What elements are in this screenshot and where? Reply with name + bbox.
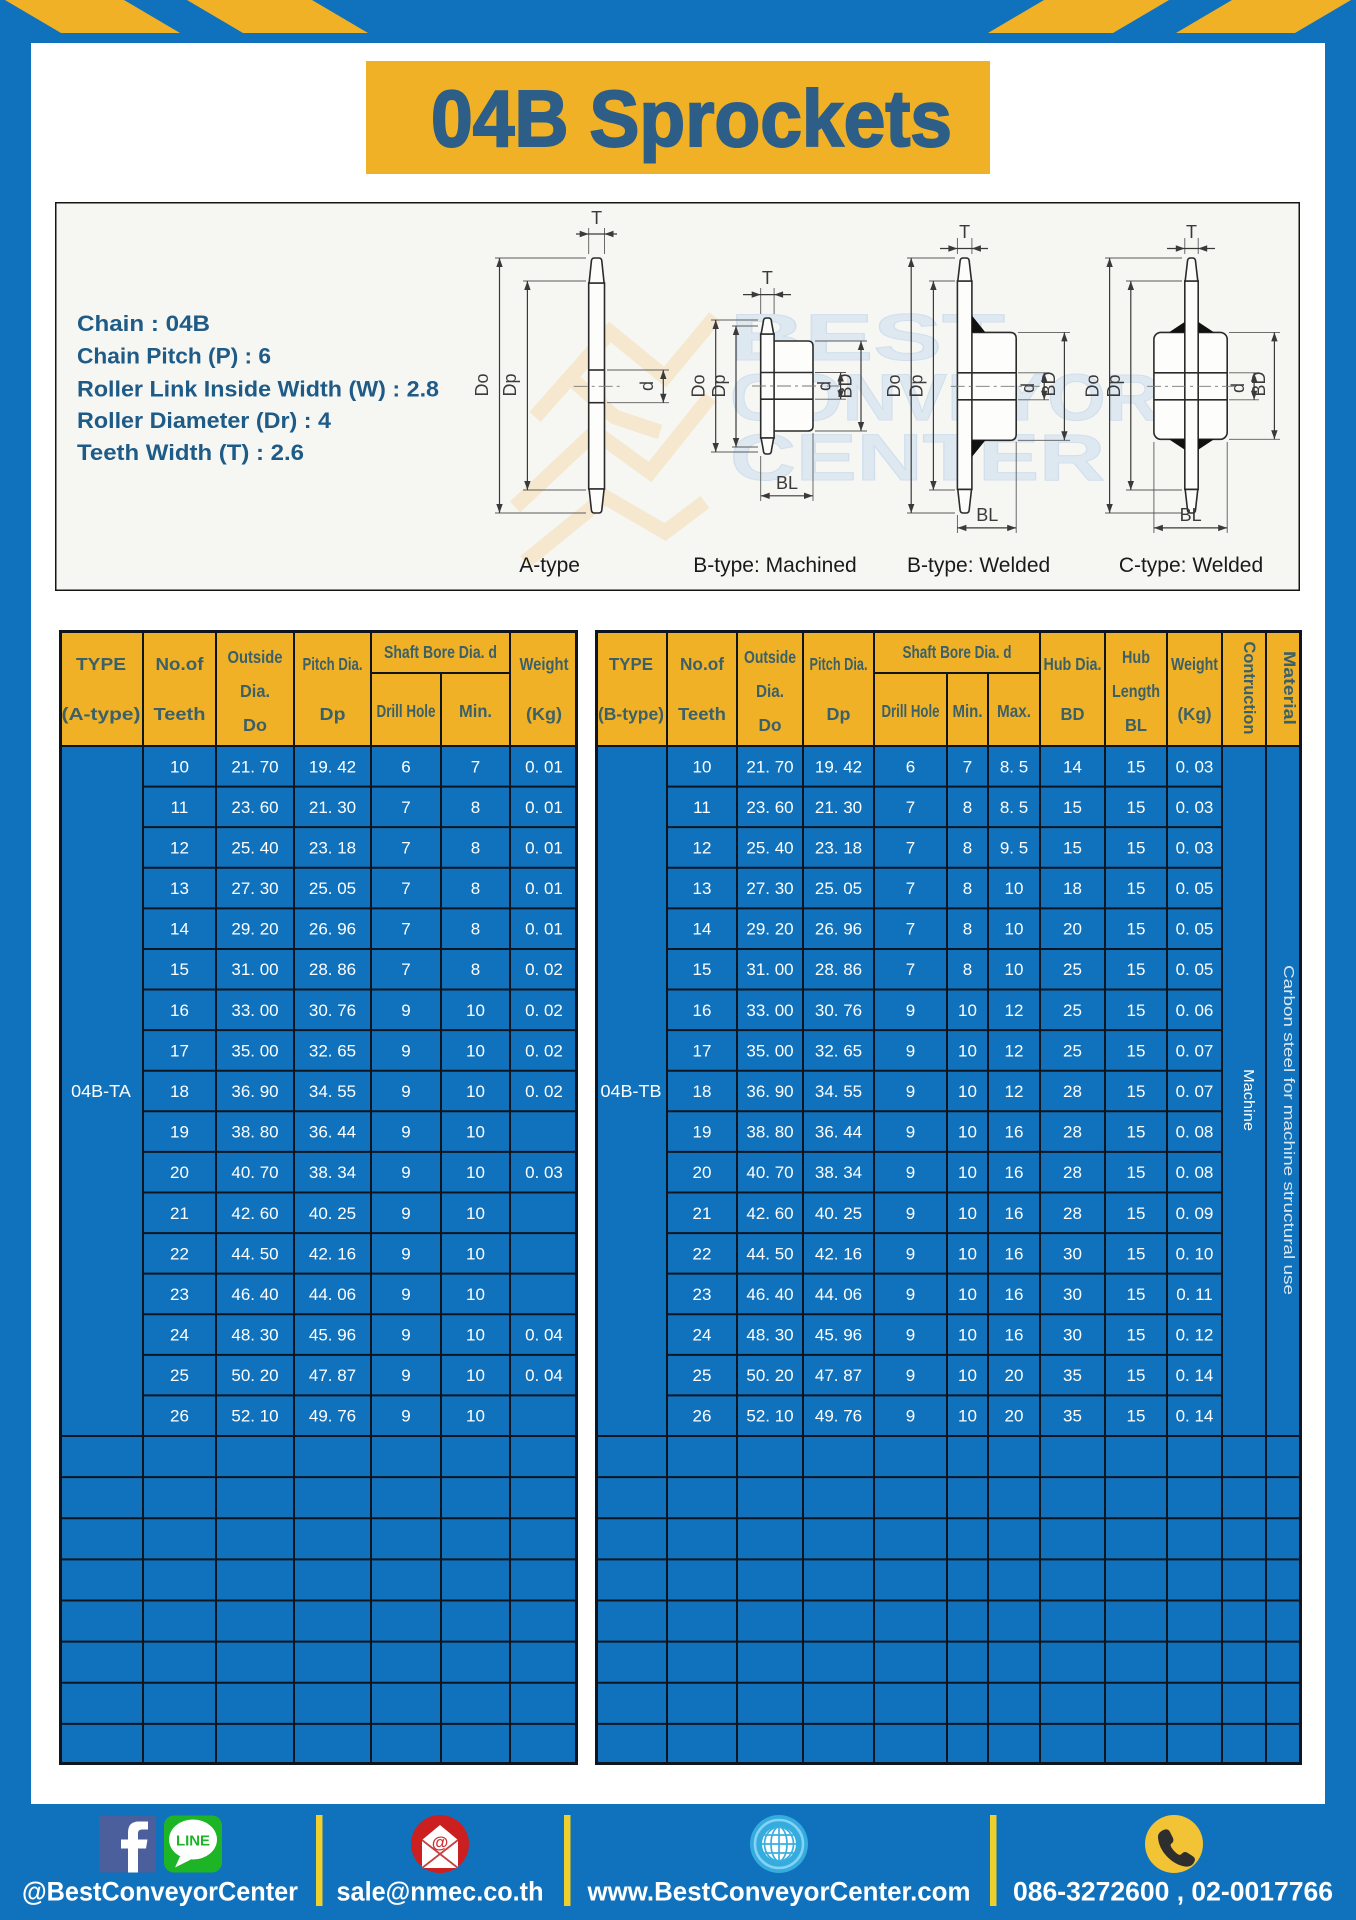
svg-text:44. 50: 44. 50 (231, 1244, 278, 1263)
svg-text:10: 10 (958, 1001, 977, 1020)
svg-text:24: 24 (170, 1326, 189, 1345)
svg-text:8. 5: 8. 5 (1000, 757, 1028, 776)
svg-text:9: 9 (401, 1123, 410, 1142)
svg-text:10: 10 (958, 1204, 977, 1223)
svg-text:(Kg): (Kg) (526, 704, 562, 724)
svg-text:@: @ (432, 1833, 449, 1852)
svg-text:10: 10 (958, 1285, 977, 1304)
svg-text:10: 10 (958, 1366, 977, 1385)
svg-text:Drill Hole: Drill Hole (376, 701, 435, 721)
svg-text:10: 10 (693, 757, 712, 776)
svg-text:20: 20 (1005, 1366, 1024, 1385)
svg-text:23. 18: 23. 18 (309, 838, 356, 857)
svg-text:10: 10 (466, 1163, 485, 1182)
svg-text:0. 04: 0. 04 (525, 1326, 563, 1345)
svg-text:10: 10 (466, 1204, 485, 1223)
svg-text:48. 30: 48. 30 (746, 1326, 793, 1345)
svg-text:21. 30: 21. 30 (309, 798, 356, 817)
svg-text:8: 8 (963, 960, 972, 979)
svg-text:10: 10 (466, 1041, 485, 1060)
svg-text:16: 16 (693, 1001, 712, 1020)
svg-text:TYPE: TYPE (609, 654, 653, 674)
svg-text:46. 40: 46. 40 (231, 1285, 278, 1304)
svg-text:(Kg): (Kg) (1177, 704, 1211, 724)
svg-text:0. 03: 0. 03 (1176, 798, 1214, 817)
svg-text:25. 40: 25. 40 (231, 838, 278, 857)
svg-text:Do: Do (472, 373, 492, 396)
svg-text:BD: BD (1039, 371, 1059, 396)
svg-text:9: 9 (906, 1041, 915, 1060)
svg-text:0. 02: 0. 02 (525, 1082, 563, 1101)
svg-text:0. 01: 0. 01 (525, 920, 563, 939)
svg-text:8: 8 (471, 798, 480, 817)
svg-text:Drill Hole: Drill Hole (882, 701, 940, 721)
svg-text:9: 9 (401, 1326, 410, 1345)
svg-text:Do: Do (1083, 374, 1103, 397)
svg-text:@BestConveyorCenter: @BestConveyorCenter (22, 1877, 298, 1907)
svg-text:7: 7 (906, 879, 915, 898)
svg-text:15: 15 (1127, 1366, 1146, 1385)
svg-text:20: 20 (693, 1163, 712, 1182)
svg-text:T: T (591, 208, 602, 228)
svg-text:26. 96: 26. 96 (815, 920, 862, 939)
svg-text:9: 9 (401, 1366, 410, 1385)
svg-text:15: 15 (1127, 1123, 1146, 1142)
svg-text:7: 7 (401, 879, 410, 898)
svg-text:25: 25 (170, 1366, 189, 1385)
svg-text:10: 10 (466, 1244, 485, 1263)
svg-text:Min.: Min. (952, 701, 982, 721)
svg-text:7: 7 (906, 798, 915, 817)
svg-text:16: 16 (1005, 1204, 1024, 1223)
svg-text:Dp: Dp (907, 374, 927, 397)
svg-text:8: 8 (471, 879, 480, 898)
svg-text:36. 90: 36. 90 (746, 1082, 793, 1101)
svg-text:Dia.: Dia. (240, 681, 270, 701)
svg-text:8: 8 (471, 960, 480, 979)
svg-text:28. 86: 28. 86 (309, 960, 356, 979)
svg-text:0. 03: 0. 03 (1176, 757, 1214, 776)
svg-text:10: 10 (466, 1082, 485, 1101)
svg-text:d: d (1228, 383, 1248, 393)
svg-text:25: 25 (1063, 1041, 1082, 1060)
svg-text:28: 28 (1063, 1163, 1082, 1182)
svg-text:24: 24 (693, 1326, 712, 1345)
svg-text:27. 30: 27. 30 (746, 879, 793, 898)
svg-text:8. 5: 8. 5 (1000, 798, 1028, 817)
svg-text:15: 15 (1127, 1326, 1146, 1345)
svg-text:38. 80: 38. 80 (746, 1123, 793, 1142)
svg-text:10: 10 (466, 1326, 485, 1345)
svg-text:13: 13 (693, 879, 712, 898)
svg-text:Hub: Hub (1122, 647, 1150, 667)
svg-text:40. 25: 40. 25 (815, 1204, 862, 1223)
svg-text:9. 5: 9. 5 (1000, 838, 1028, 857)
svg-text:49. 76: 49. 76 (815, 1407, 862, 1426)
svg-text:12: 12 (1005, 1082, 1024, 1101)
svg-text:36. 44: 36. 44 (815, 1123, 862, 1142)
svg-text:21: 21 (170, 1204, 189, 1223)
svg-text:30: 30 (1063, 1326, 1082, 1345)
svg-text:T: T (959, 222, 970, 242)
svg-text:25: 25 (1063, 960, 1082, 979)
svg-text:Dp: Dp (319, 704, 345, 724)
svg-text:10: 10 (466, 1123, 485, 1142)
svg-text:0. 14: 0. 14 (1176, 1366, 1214, 1385)
svg-text:10: 10 (958, 1326, 977, 1345)
svg-text:30: 30 (1063, 1285, 1082, 1304)
svg-text:9: 9 (401, 1407, 410, 1426)
svg-text:A-type: A-type (519, 554, 580, 577)
svg-text:(A-type): (A-type) (62, 704, 141, 724)
svg-text:7: 7 (401, 798, 410, 817)
svg-text:26. 96: 26. 96 (309, 920, 356, 939)
svg-text:50. 20: 50. 20 (231, 1366, 278, 1385)
svg-text:38. 34: 38. 34 (309, 1163, 356, 1182)
svg-text:0. 04: 0. 04 (525, 1366, 563, 1385)
svg-text:15: 15 (1127, 1082, 1146, 1101)
svg-text:7: 7 (906, 838, 915, 857)
svg-text:0. 09: 0. 09 (1176, 1204, 1214, 1223)
svg-text:48. 30: 48. 30 (231, 1326, 278, 1345)
svg-text:18: 18 (170, 1082, 189, 1101)
svg-text:04B-TB: 04B-TB (601, 1081, 662, 1101)
svg-text:086-3272600 , 02-0017766: 086-3272600 , 02-0017766 (1013, 1877, 1333, 1907)
svg-text:0. 07: 0. 07 (1176, 1041, 1214, 1060)
svg-text:9: 9 (401, 1163, 410, 1182)
svg-text:9: 9 (906, 1244, 915, 1263)
svg-text:19. 42: 19. 42 (309, 757, 356, 776)
svg-text:10: 10 (466, 1285, 485, 1304)
svg-text:Outside: Outside (228, 647, 283, 667)
svg-text:Length: Length (1112, 681, 1160, 701)
svg-text:6: 6 (906, 757, 915, 776)
svg-text:31. 00: 31. 00 (746, 960, 793, 979)
svg-text:04B Sprockets: 04B Sprockets (431, 74, 952, 163)
svg-text:Do: Do (884, 374, 904, 397)
svg-text:15: 15 (1127, 757, 1146, 776)
svg-text:15: 15 (1063, 838, 1082, 857)
svg-text:T: T (762, 268, 773, 288)
svg-text:35: 35 (1063, 1407, 1082, 1426)
svg-text:Do: Do (759, 715, 782, 735)
svg-text:Contruction: Contruction (1240, 641, 1259, 734)
svg-text:15: 15 (170, 960, 189, 979)
svg-text:Roller Diameter (Dr) : 4: Roller Diameter (Dr) : 4 (77, 408, 332, 433)
svg-text:B-type: Machined: B-type: Machined (693, 554, 856, 577)
svg-text:47. 87: 47. 87 (815, 1366, 862, 1385)
svg-text:Dp: Dp (1104, 374, 1124, 397)
svg-text:0. 02: 0. 02 (525, 1001, 563, 1020)
svg-text:22: 22 (693, 1244, 712, 1263)
svg-text:0. 14: 0. 14 (1176, 1407, 1214, 1426)
svg-text:35. 00: 35. 00 (231, 1041, 278, 1060)
svg-text:(B-type): (B-type) (598, 704, 664, 724)
svg-text:d: d (637, 381, 657, 391)
svg-text:14: 14 (1063, 757, 1082, 776)
svg-text:25. 05: 25. 05 (815, 879, 862, 898)
svg-text:21. 30: 21. 30 (815, 798, 862, 817)
svg-text:9: 9 (401, 1001, 410, 1020)
svg-text:40. 25: 40. 25 (309, 1204, 356, 1223)
svg-text:15: 15 (1127, 1041, 1146, 1060)
svg-text:9: 9 (401, 1041, 410, 1060)
svg-text:16: 16 (1005, 1326, 1024, 1345)
svg-text:15: 15 (1127, 1244, 1146, 1263)
svg-text:17: 17 (693, 1041, 712, 1060)
svg-text:Min.: Min. (459, 701, 492, 721)
svg-text:10: 10 (958, 1041, 977, 1060)
svg-text:10: 10 (466, 1001, 485, 1020)
svg-text:46. 40: 46. 40 (746, 1285, 793, 1304)
svg-text:23. 60: 23. 60 (746, 798, 793, 817)
svg-text:12: 12 (693, 838, 712, 857)
svg-text:7: 7 (906, 920, 915, 939)
svg-text:8: 8 (471, 920, 480, 939)
svg-text:38. 34: 38. 34 (815, 1163, 862, 1182)
svg-text:Max.: Max. (997, 701, 1031, 721)
svg-text:23: 23 (170, 1285, 189, 1304)
svg-text:10: 10 (170, 757, 189, 776)
svg-text:15: 15 (1063, 798, 1082, 817)
svg-text:0. 05: 0. 05 (1176, 879, 1214, 898)
svg-text:8: 8 (963, 920, 972, 939)
svg-text:10: 10 (466, 1407, 485, 1426)
svg-text:No.of: No.of (156, 654, 205, 674)
svg-text:15: 15 (1127, 798, 1146, 817)
svg-text:9: 9 (906, 1366, 915, 1385)
svg-text:BL: BL (776, 473, 798, 493)
svg-text:9: 9 (906, 1001, 915, 1020)
svg-text:Carbon steel for machine struc: Carbon steel for machine structural use (1280, 965, 1297, 1295)
svg-text:B-type: Welded: B-type: Welded (907, 554, 1050, 577)
svg-text:9: 9 (401, 1204, 410, 1223)
svg-text:14: 14 (693, 920, 712, 939)
svg-text:16: 16 (1005, 1123, 1024, 1142)
svg-text:15: 15 (1127, 960, 1146, 979)
svg-text:BL: BL (976, 505, 998, 525)
svg-text:19: 19 (693, 1123, 712, 1142)
svg-text:42. 16: 42. 16 (309, 1244, 356, 1263)
svg-text:45. 96: 45. 96 (309, 1326, 356, 1345)
svg-text:12: 12 (170, 838, 189, 857)
svg-text:20: 20 (170, 1163, 189, 1182)
svg-text:9: 9 (906, 1082, 915, 1101)
svg-text:d: d (815, 381, 835, 391)
svg-text:25: 25 (693, 1366, 712, 1385)
svg-text:C-type: Welded: C-type: Welded (1119, 554, 1263, 577)
svg-text:BD: BD (1060, 704, 1084, 724)
svg-text:10: 10 (958, 1082, 977, 1101)
svg-text:26: 26 (693, 1407, 712, 1426)
svg-text:9: 9 (906, 1163, 915, 1182)
svg-text:0. 01: 0. 01 (525, 798, 563, 817)
svg-text:9: 9 (906, 1204, 915, 1223)
svg-text:36. 90: 36. 90 (231, 1082, 278, 1101)
svg-text:9: 9 (906, 1407, 915, 1426)
svg-text:15: 15 (1127, 920, 1146, 939)
svg-text:23: 23 (693, 1285, 712, 1304)
svg-text:Pitch Dia.: Pitch Dia. (810, 654, 868, 674)
svg-text:12: 12 (1005, 1041, 1024, 1060)
svg-text:42. 60: 42. 60 (231, 1204, 278, 1223)
svg-text:BL: BL (1125, 715, 1147, 735)
svg-text:16: 16 (1005, 1285, 1024, 1304)
svg-text:9: 9 (906, 1123, 915, 1142)
svg-text:0. 07: 0. 07 (1176, 1082, 1214, 1101)
svg-text:44. 06: 44. 06 (309, 1285, 356, 1304)
svg-text:Shaft Bore Dia. d: Shaft Bore Dia. d (384, 642, 497, 662)
svg-text:34. 55: 34. 55 (815, 1082, 862, 1101)
svg-text:Weight: Weight (519, 654, 568, 674)
svg-text:Dp: Dp (827, 704, 851, 724)
svg-text:Do: Do (689, 374, 709, 397)
svg-text:BD: BD (1249, 371, 1269, 396)
svg-text:52. 10: 52. 10 (746, 1407, 793, 1426)
svg-text:d: d (1018, 383, 1038, 393)
svg-text:Dia.: Dia. (756, 681, 784, 701)
svg-text:32. 65: 32. 65 (309, 1041, 356, 1060)
svg-text:52. 10: 52. 10 (231, 1407, 278, 1426)
svg-text:Teeth: Teeth (678, 704, 726, 724)
svg-text:15: 15 (1127, 1001, 1146, 1020)
svg-text:18: 18 (693, 1082, 712, 1101)
svg-text:49. 76: 49. 76 (309, 1407, 356, 1426)
svg-text:0. 12: 0. 12 (1176, 1326, 1214, 1345)
svg-text:0. 02: 0. 02 (525, 960, 563, 979)
svg-text:30: 30 (1063, 1244, 1082, 1263)
svg-text:Dp: Dp (500, 373, 520, 396)
svg-text:17: 17 (170, 1041, 189, 1060)
svg-text:LINE: LINE (176, 1833, 210, 1850)
svg-text:Dp: Dp (709, 374, 729, 397)
svg-text:Roller Link Inside Width (W): Roller Link Inside Width (W) : 2.8 (77, 377, 439, 402)
svg-text:35: 35 (1063, 1366, 1082, 1385)
svg-text:28: 28 (1063, 1123, 1082, 1142)
svg-text:Machine: Machine (1240, 1069, 1257, 1131)
svg-text:7: 7 (963, 757, 972, 776)
svg-text:BD: BD (836, 373, 856, 398)
svg-text:9: 9 (401, 1082, 410, 1101)
svg-text:42. 60: 42. 60 (746, 1204, 793, 1223)
svg-text:29. 20: 29. 20 (231, 920, 278, 939)
svg-text:14: 14 (170, 920, 189, 939)
svg-text:Outside: Outside (744, 647, 796, 667)
svg-text:0. 11: 0. 11 (1176, 1285, 1213, 1304)
svg-text:13: 13 (170, 879, 189, 898)
svg-text:35. 00: 35. 00 (746, 1041, 793, 1060)
svg-text:22: 22 (170, 1244, 189, 1263)
svg-text:10: 10 (466, 1366, 485, 1385)
svg-text:30. 76: 30. 76 (815, 1001, 862, 1020)
svg-text:21. 70: 21. 70 (746, 757, 793, 776)
svg-text:16: 16 (170, 1001, 189, 1020)
svg-text:38. 80: 38. 80 (231, 1123, 278, 1142)
svg-text:Do: Do (243, 715, 267, 735)
svg-text:36. 44: 36. 44 (309, 1123, 356, 1142)
svg-text:10: 10 (1005, 879, 1024, 898)
svg-text:28. 86: 28. 86 (815, 960, 862, 979)
svg-text:15: 15 (1127, 1163, 1146, 1182)
svg-text:10: 10 (1005, 920, 1024, 939)
svg-text:25. 05: 25. 05 (309, 879, 356, 898)
svg-text:21. 70: 21. 70 (231, 757, 278, 776)
svg-text:10: 10 (1005, 960, 1024, 979)
svg-text:32. 65: 32. 65 (815, 1041, 862, 1060)
svg-text:9: 9 (906, 1326, 915, 1345)
svg-text:23. 60: 23. 60 (231, 798, 278, 817)
svg-text:04B-TA: 04B-TA (71, 1081, 131, 1101)
svg-text:TYPE: TYPE (76, 654, 126, 674)
svg-text:10: 10 (958, 1407, 977, 1426)
svg-text:44. 06: 44. 06 (815, 1285, 862, 1304)
svg-text:33. 00: 33. 00 (746, 1001, 793, 1020)
svg-text:18: 18 (1063, 879, 1082, 898)
svg-text:Teeth: Teeth (154, 704, 206, 724)
svg-text:15: 15 (1127, 879, 1146, 898)
svg-text:7: 7 (401, 920, 410, 939)
svg-text:Shaft Bore Dia. d: Shaft Bore Dia. d (903, 642, 1012, 662)
svg-text:Weight: Weight (1171, 654, 1218, 674)
svg-text:40. 70: 40. 70 (746, 1163, 793, 1182)
svg-text:28: 28 (1063, 1082, 1082, 1101)
svg-text:25: 25 (1063, 1001, 1082, 1020)
svg-text:T: T (1186, 222, 1197, 242)
svg-text:0. 01: 0. 01 (525, 838, 563, 857)
svg-text:8: 8 (963, 838, 972, 857)
svg-text:50. 20: 50. 20 (746, 1366, 793, 1385)
svg-text:0. 06: 0. 06 (1176, 1001, 1214, 1020)
svg-text:23. 18: 23. 18 (815, 838, 862, 857)
svg-text:15: 15 (1127, 1407, 1146, 1426)
svg-text:6: 6 (401, 757, 410, 776)
svg-text:8: 8 (471, 838, 480, 857)
svg-text:0. 01: 0. 01 (525, 757, 563, 776)
svg-text:No.of: No.of (680, 654, 725, 674)
svg-text:0. 01: 0. 01 (525, 879, 563, 898)
svg-text:29. 20: 29. 20 (746, 920, 793, 939)
svg-text:0. 03: 0. 03 (1176, 838, 1214, 857)
svg-text:15: 15 (1127, 838, 1146, 857)
svg-text:Chain Pitch (P) : 6: Chain Pitch (P) : 6 (77, 344, 271, 369)
svg-text:28: 28 (1063, 1204, 1082, 1223)
svg-text:9: 9 (401, 1285, 410, 1304)
svg-text:15: 15 (1127, 1285, 1146, 1304)
svg-text:12: 12 (1005, 1001, 1024, 1020)
svg-text:34. 55: 34. 55 (309, 1082, 356, 1101)
svg-text:0. 08: 0. 08 (1176, 1123, 1214, 1142)
svg-text:25. 40: 25. 40 (746, 838, 793, 857)
svg-text:0. 05: 0. 05 (1176, 920, 1214, 939)
svg-text:BL: BL (1180, 505, 1202, 525)
svg-text:45. 96: 45. 96 (815, 1326, 862, 1345)
svg-text:8: 8 (963, 879, 972, 898)
svg-text:19: 19 (170, 1123, 189, 1142)
svg-text:0. 03: 0. 03 (525, 1163, 563, 1182)
svg-text:20: 20 (1005, 1407, 1024, 1426)
svg-text:10: 10 (958, 1123, 977, 1142)
svg-text:33. 00: 33. 00 (231, 1001, 278, 1020)
svg-text:8: 8 (963, 798, 972, 817)
svg-text:7: 7 (401, 838, 410, 857)
svg-text:44. 50: 44. 50 (746, 1244, 793, 1263)
svg-text:0. 08: 0. 08 (1176, 1163, 1214, 1182)
svg-text:Hub Dia.: Hub Dia. (1043, 654, 1101, 674)
svg-text:Material: Material (1280, 651, 1299, 725)
svg-text:42. 16: 42. 16 (815, 1244, 862, 1263)
svg-text:15: 15 (1127, 1204, 1146, 1223)
svg-text:Teeth Width (T) : 2.6: Teeth Width (T) : 2.6 (77, 440, 304, 465)
